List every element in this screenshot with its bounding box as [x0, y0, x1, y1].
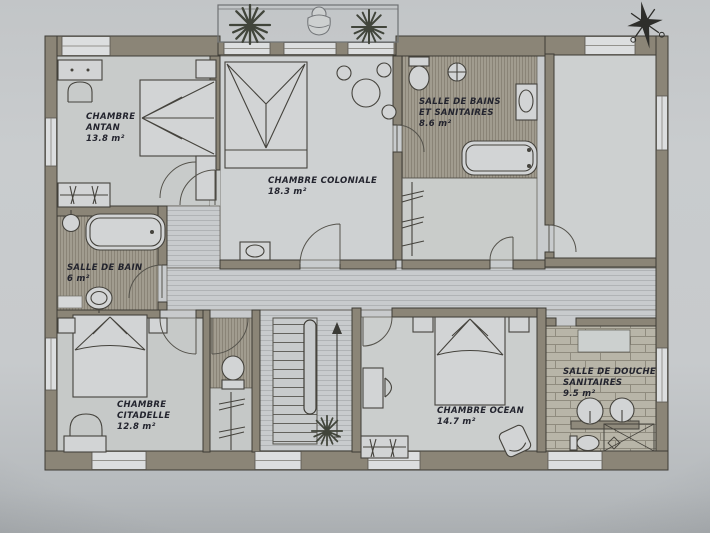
- nightstand: [196, 60, 216, 78]
- window: [548, 452, 602, 470]
- room-name: SALLE DE BAINS ET SANITAIRES: [419, 97, 501, 119]
- room-label-salle-de-douche: SALLE DE DOUCHE SANITAIRES 9.5 m²: [563, 367, 656, 401]
- washbasin: [610, 398, 634, 422]
- floor-empty-room: [554, 54, 656, 258]
- floor-plan-drawing: CHAMBRE ANTAN 13.8 m² CHAMBRE COLONIALE …: [0, 0, 710, 533]
- wardrobe: [58, 183, 110, 207]
- room-area: 6 m²: [67, 274, 142, 285]
- double-bed: [225, 62, 307, 168]
- floor-corridor-right: [546, 310, 656, 318]
- room-name: CHAMBRE ANTAN: [86, 112, 135, 134]
- round-sink: [448, 63, 466, 81]
- washbasin: [516, 84, 537, 120]
- window: [585, 37, 635, 55]
- room-area: 9.5 m²: [563, 389, 656, 400]
- bathtub: [462, 141, 537, 175]
- plant-icon: [230, 5, 270, 44]
- window: [92, 452, 146, 470]
- bathtub: [86, 214, 165, 250]
- toilet: [570, 436, 599, 451]
- wardrobe: [361, 436, 408, 458]
- room-label-chambre-ocean: CHAMBRE OCEAN 14.7 m²: [437, 406, 524, 428]
- room-name: SALLE DE DOUCHE SANITAIRES: [563, 367, 656, 389]
- room-area: 8.6 m²: [419, 119, 501, 130]
- double-bed: [73, 315, 147, 397]
- room-label-chambre-citadelle: CHAMBRE CITADELLE 12.8 m²: [117, 400, 170, 434]
- room-label-salle-de-bains: SALLE DE BAINS ET SANITAIRES 8.6 m²: [419, 97, 501, 131]
- window: [657, 348, 668, 402]
- window: [46, 338, 57, 390]
- vanity-counter: [571, 421, 639, 429]
- room-area: 13.8 m²: [86, 134, 135, 145]
- floor-dressing: [402, 178, 537, 260]
- room-name: CHAMBRE COLONIALE: [268, 176, 377, 187]
- nightstand: [58, 318, 75, 333]
- room-area: 14.7 m²: [437, 417, 524, 428]
- double-bed: [140, 80, 216, 156]
- room-name: SALLE DE BAIN: [67, 263, 142, 274]
- room-label-salle-de-bain: SALLE DE BAIN 6 m²: [67, 263, 142, 285]
- washbasin: [577, 398, 603, 424]
- bath-mat: [58, 296, 82, 308]
- plant-icon: [352, 10, 386, 43]
- nightstand: [149, 318, 167, 333]
- room-label-chambre-coloniale: CHAMBRE COLONIALE 18.3 m²: [268, 176, 377, 198]
- dresser: [58, 60, 102, 80]
- double-bed: [435, 317, 505, 405]
- nightstand: [413, 317, 433, 332]
- washbasin: [240, 242, 270, 260]
- shower-entry-recess: [578, 330, 630, 352]
- window: [62, 37, 110, 56]
- room-label-chambre-antan: CHAMBRE ANTAN 13.8 m²: [86, 112, 135, 146]
- sun-lounger-icon: [308, 7, 331, 35]
- floor-corridor-vertical: [167, 206, 220, 268]
- room-area: 18.3 m²: [268, 187, 377, 198]
- toilet: [409, 57, 429, 90]
- room-name: CHAMBRE CITADELLE: [117, 400, 170, 422]
- window: [657, 96, 668, 150]
- floor-plan-photo: CHAMBRE ANTAN 13.8 m² CHAMBRE COLONIALE …: [0, 0, 710, 533]
- toilet: [222, 356, 244, 389]
- balcony: [218, 5, 398, 44]
- room-name: CHAMBRE OCEAN: [437, 406, 524, 417]
- room-area: 12.8 m²: [117, 422, 170, 433]
- window: [255, 452, 301, 470]
- stair-railing: [304, 320, 316, 414]
- floor-corridor: [167, 268, 656, 310]
- nightstand: [509, 317, 529, 332]
- plant-icon: [312, 416, 342, 446]
- window: [46, 118, 57, 166]
